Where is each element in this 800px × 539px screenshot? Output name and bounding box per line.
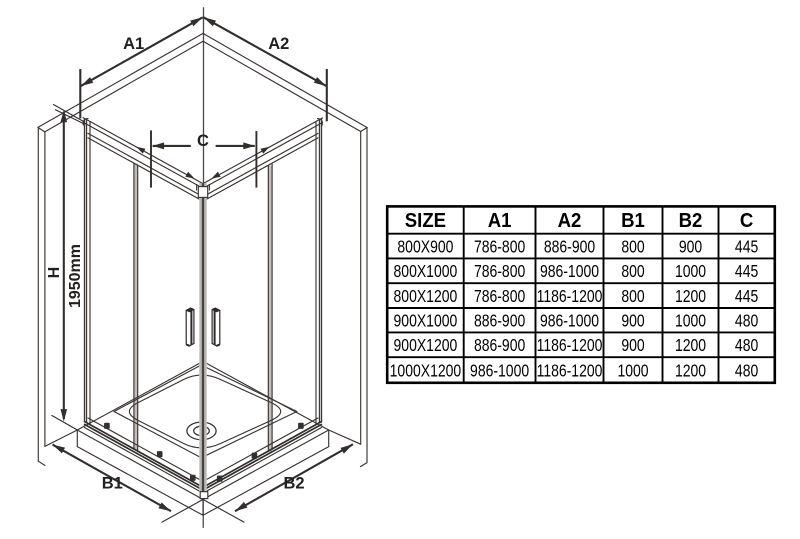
svg-text:1186-1200: 1186-1200 (537, 362, 603, 381)
svg-text:1186-1200: 1186-1200 (537, 288, 603, 307)
svg-text:900X1000: 900X1000 (394, 312, 458, 331)
svg-text:786-800: 786-800 (474, 288, 525, 307)
svg-text:1000X1200: 1000X1200 (390, 362, 462, 381)
svg-text:800: 800 (621, 263, 645, 282)
svg-text:480: 480 (735, 312, 759, 331)
svg-text:1186-1200: 1186-1200 (537, 337, 603, 356)
svg-text:800: 800 (621, 288, 645, 307)
svg-text:480: 480 (735, 362, 759, 381)
svg-text:800X1200: 800X1200 (394, 288, 458, 307)
svg-text:445: 445 (735, 238, 759, 257)
svg-text:A1: A1 (488, 211, 512, 233)
svg-text:B1: B1 (621, 211, 645, 233)
svg-text:900: 900 (621, 312, 645, 331)
svg-text:SIZE: SIZE (405, 211, 446, 233)
svg-text:1200: 1200 (675, 362, 706, 381)
svg-text:800: 800 (621, 238, 645, 257)
svg-text:986-1000: 986-1000 (540, 312, 599, 331)
svg-text:800X1000: 800X1000 (394, 263, 458, 282)
svg-text:B2: B2 (679, 211, 703, 233)
svg-text:886-900: 886-900 (474, 312, 525, 331)
svg-text:900: 900 (621, 337, 645, 356)
svg-text:900: 900 (679, 238, 703, 257)
svg-text:1000: 1000 (617, 362, 648, 381)
svg-text:886-900: 886-900 (474, 337, 525, 356)
svg-text:B1: B1 (102, 475, 123, 493)
svg-text:986-1000: 986-1000 (470, 362, 529, 381)
svg-text:H: H (46, 267, 63, 279)
svg-text:445: 445 (735, 263, 759, 282)
svg-text:1000: 1000 (675, 312, 706, 331)
svg-text:786-800: 786-800 (474, 238, 525, 257)
svg-text:1950mm: 1950mm (67, 244, 84, 308)
svg-text:786-800: 786-800 (474, 263, 525, 282)
svg-text:C: C (197, 132, 209, 150)
svg-text:900X1200: 900X1200 (394, 337, 458, 356)
svg-text:1200: 1200 (675, 337, 706, 356)
svg-text:C: C (740, 211, 753, 233)
svg-text:445: 445 (735, 288, 759, 307)
svg-text:A2: A2 (268, 35, 289, 53)
svg-text:986-1000: 986-1000 (540, 263, 599, 282)
svg-text:A1: A1 (123, 35, 144, 53)
svg-text:886-900: 886-900 (544, 238, 595, 257)
svg-text:800X900: 800X900 (397, 238, 453, 257)
svg-text:A2: A2 (558, 211, 582, 233)
svg-text:480: 480 (735, 337, 759, 356)
svg-text:1000: 1000 (675, 263, 706, 282)
svg-text:1200: 1200 (675, 288, 706, 307)
svg-text:B2: B2 (283, 475, 304, 493)
